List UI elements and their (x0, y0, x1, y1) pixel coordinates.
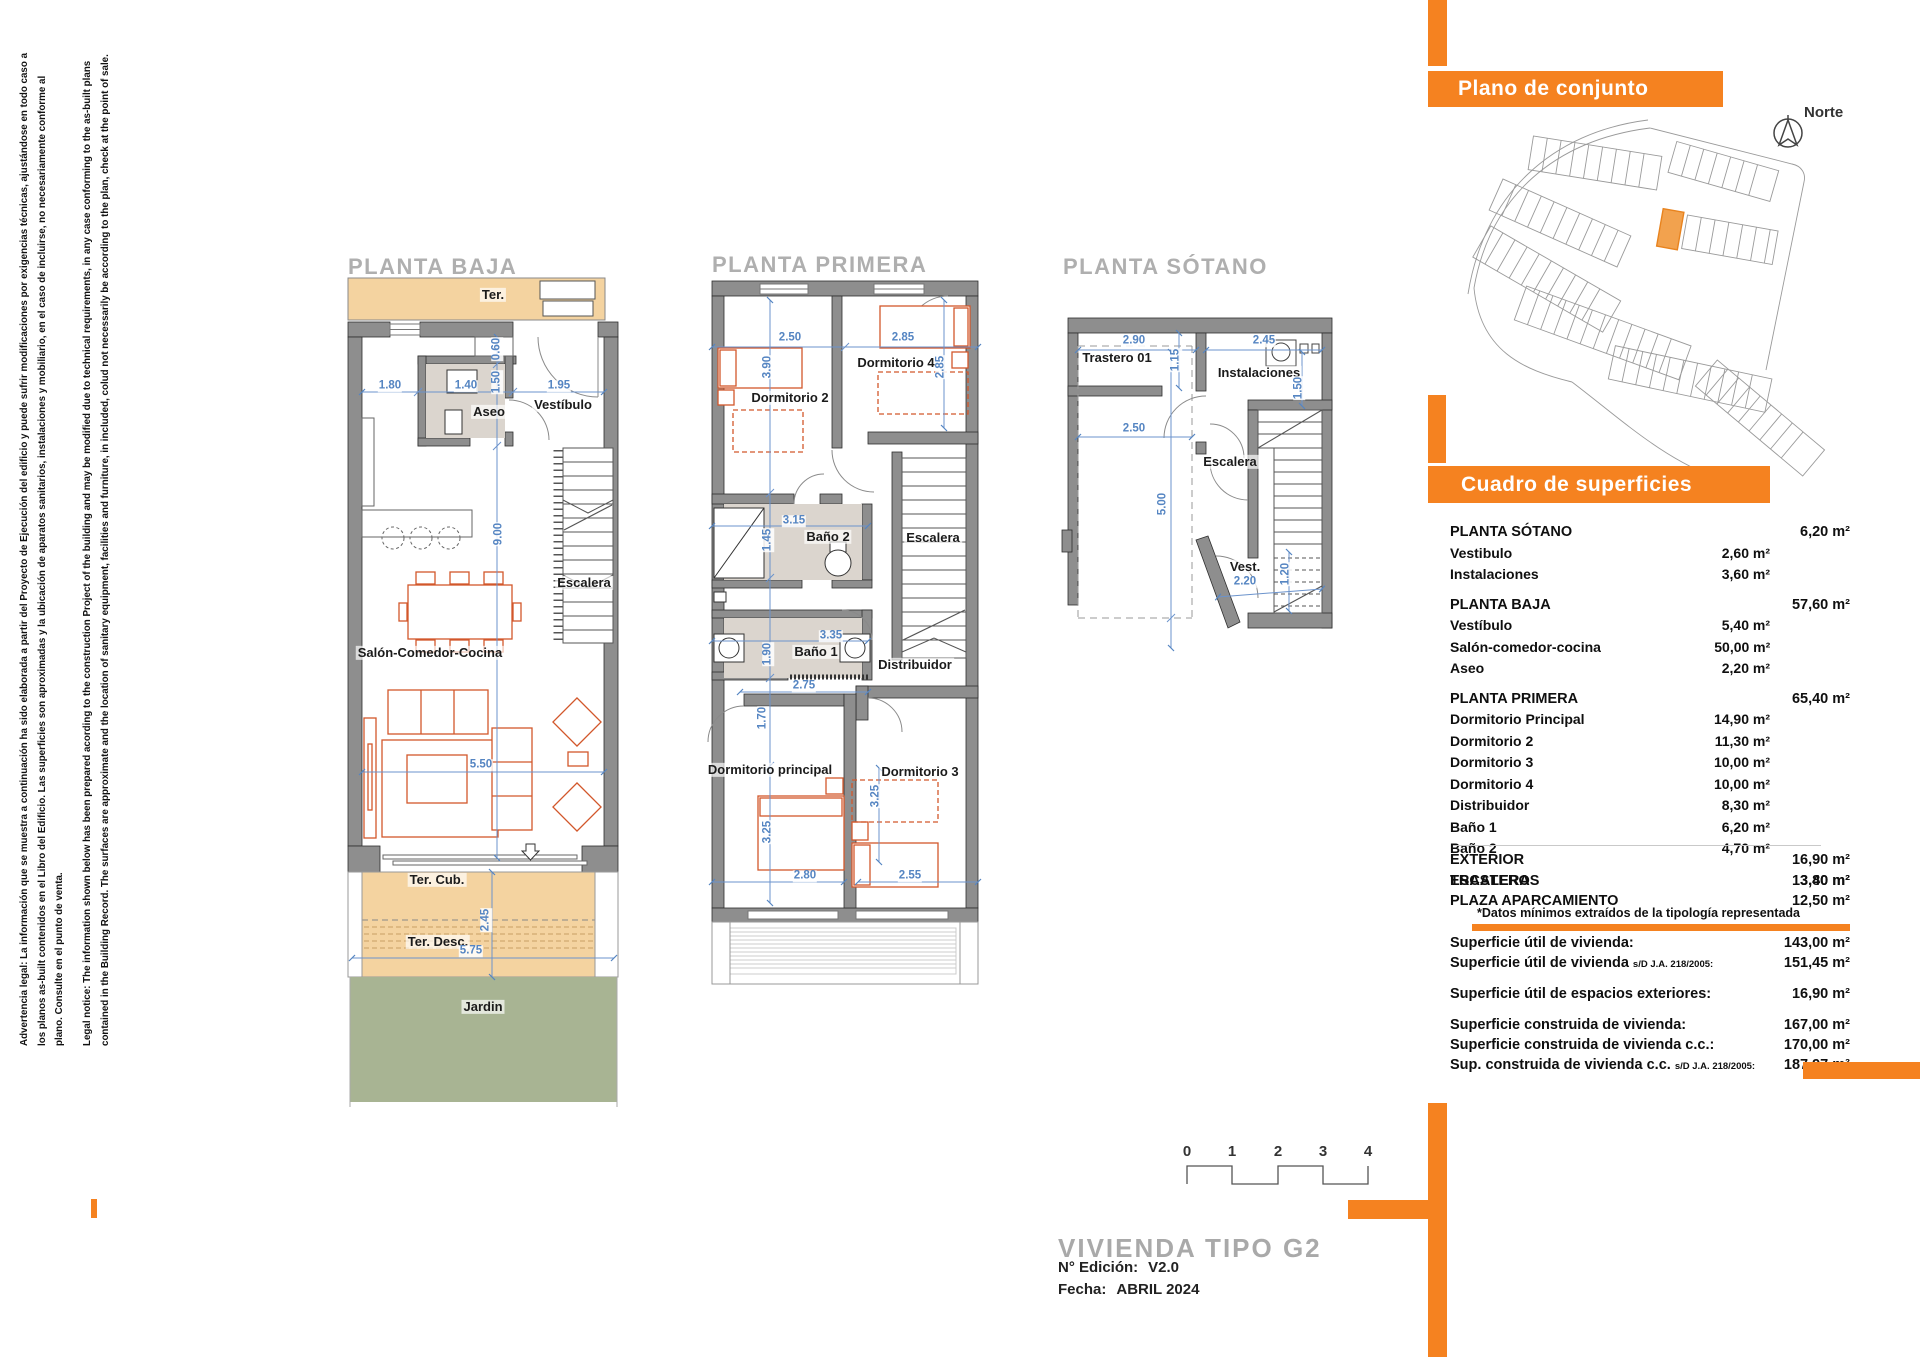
dim-primera-dorm3-d: 3.25 (870, 784, 882, 808)
surface-table-row: Instalaciones 3,60 m² (1450, 565, 1850, 587)
dim-primera-dorm2-d: 3.90 (762, 355, 774, 379)
north-label: Norte (1804, 104, 1843, 121)
site-plan-header-label: Plano de conjunto (1458, 77, 1649, 101)
surface-table-row: EXTERIOR 16,90 m² (1450, 851, 1850, 872)
dim-primera-ppal-w: 2.80 (793, 870, 817, 882)
plan-title-primera: PLANTA PRIMERA (712, 252, 927, 278)
surfaces-header-label: Cuadro de superficies (1461, 473, 1692, 497)
room-label-dorm4: Dormitorio 4 (855, 356, 936, 370)
dim-baja-length: 9.00 (493, 522, 505, 546)
site-plan-header: Plano de conjunto (1428, 71, 1723, 107)
site-plan-drawing (1468, 120, 1825, 480)
minimum-data-note: *Datos mínimos extraídos de la tipología… (1477, 906, 1800, 920)
dim-sotano-vest-w: 2.20 (1233, 576, 1257, 588)
legal-notice: Advertencia legal: La información que se… (16, 46, 124, 1046)
room-label-bano1: Baño 1 (792, 645, 839, 659)
surface-table-row: Dormitorio 2 11,30 m² (1450, 732, 1850, 754)
legal-notice-es: Advertencia legal: La información que se… (16, 46, 69, 1046)
plan-title-baja: PLANTA BAJA (348, 254, 517, 280)
surface-table-row: Superficie útil de vivienda s/D J.A. 218… (1450, 954, 1850, 974)
date-line: Fecha:ABRIL 2024 (1058, 1281, 1199, 1298)
dim-sotano-trastero-w: 2.90 (1122, 335, 1146, 347)
surface-table-row: Distribuidor 8,30 m² (1450, 796, 1850, 818)
room-label-salon: Salón-Comedor-Cocina (356, 646, 504, 660)
room-label-jardin: Jardin (461, 1000, 504, 1014)
surface-table-row: Superficie útil de vivienda: 143,00 m² (1450, 934, 1850, 954)
surface-table-row: Baño 1 6,20 m² (1450, 818, 1850, 840)
surface-table-row: Aseo 2,20 m² (1450, 659, 1850, 681)
dim-primera-ppal-d: 3.25 (762, 820, 774, 844)
scale-tick-4: 4 (1364, 1143, 1372, 1160)
header-accent-stem (1428, 0, 1447, 66)
room-label-dorm2: Dormitorio 2 (749, 391, 830, 405)
dim-sotano-parking-w: 2.50 (1122, 423, 1146, 435)
dim-primera-dorm4-d: 2.85 (935, 355, 947, 379)
edition-line: N° Edición:V2.0 (1058, 1259, 1179, 1276)
surface-table-row: Dormitorio 4 10,00 m² (1450, 775, 1850, 797)
dim-primera-dorm4-w: 2.85 (891, 332, 915, 344)
dim-sotano-parking-l: 5.00 (1157, 492, 1169, 516)
room-label-escalera-sotano: Escalera (1201, 455, 1259, 469)
dim-baja-d-aseo: 1.50 (491, 370, 503, 394)
surface-table-main: PLANTA SÓTANO 6,20 m² Vestibulo 2,60 m² … (1450, 514, 1850, 892)
room-label-escalera-primera: Escalera (904, 531, 962, 545)
surface-table-row: Vestibulo 2,60 m² (1450, 544, 1850, 566)
legal-notice-en: Legal notice: The information shown belo… (79, 46, 114, 1046)
dim-primera-dorm3-w: 2.55 (898, 870, 922, 882)
dim-sotano-trastero-d: 1.15 (1170, 348, 1182, 372)
dim-sotano-inst-w: 2.45 (1252, 335, 1276, 347)
surface-table-row: Superficie útil de espacios exteriores: … (1450, 985, 1850, 1005)
room-label-aseo: Aseo (471, 405, 507, 419)
dim-baja-terrace-depth: 2.45 (480, 908, 492, 932)
surface-table-exterior: EXTERIOR 16,90 m² TRASTERO 3,40 m² PLAZA… (1450, 851, 1850, 913)
dim-primera-bano1-w: 3.35 (819, 630, 843, 642)
scale-bar (1187, 1166, 1368, 1184)
date-label: Fecha: (1058, 1281, 1106, 1298)
room-label-distribuidor: Distribuidor (876, 658, 954, 672)
room-label-escalera-baja: Escalera (555, 576, 613, 590)
surface-table-row: PLANTA SÓTANO 6,20 m² (1450, 523, 1850, 544)
surface-table-row: Dormitorio 3 10,00 m² (1450, 753, 1850, 775)
dim-baja-d-closet: 0.60 (491, 337, 503, 361)
dim-sotano-inst-d: 1.50 (1293, 376, 1305, 400)
surface-table-row: Dormitorio Principal 14,90 m² (1450, 710, 1850, 732)
room-label-dorm3: Dormitorio 3 (879, 765, 960, 779)
edition-label: N° Edición: (1058, 1259, 1138, 1276)
scale-tick-0: 0 (1183, 1143, 1191, 1160)
left-margin-accent (91, 1199, 97, 1218)
scale-tick-1: 1 (1228, 1143, 1236, 1160)
dim-baja-width: 5.50 (469, 759, 493, 771)
room-label-vestibulo: Vestíbulo (532, 398, 594, 412)
scale-tick-3: 3 (1319, 1143, 1327, 1160)
surfaces-accent-stem (1428, 395, 1446, 463)
dim-baja-terrace-width: 5.75 (459, 945, 483, 957)
dim-primera-bano2-d: 1.45 (762, 528, 774, 552)
surface-table-row: Salón-comedor-cocina 50,00 m² (1450, 638, 1850, 660)
room-label-instalaciones: Instalaciones (1216, 366, 1302, 380)
dim-baja-w-right: 1.95 (547, 380, 571, 392)
date-value: ABRIL 2024 (1116, 1281, 1199, 1298)
surface-table-row: PLANTA PRIMERA 65,40 m² (1450, 690, 1850, 711)
plan-title-sotano: PLANTA SÓTANO (1063, 254, 1268, 280)
scale-tick-2: 2 (1274, 1143, 1282, 1160)
surfaces-header: Cuadro de superficies (1428, 466, 1770, 503)
room-label-ter-cub: Ter. Cub. (408, 873, 467, 887)
north-compass-icon (1774, 115, 1802, 147)
room-label-trastero: Trastero 01 (1080, 351, 1153, 365)
surface-table-row: Sup. construida de vivienda c.c. s/D J.A… (1450, 1056, 1850, 1076)
dim-primera-bano2-w: 3.15 (782, 515, 806, 527)
surface-table-row: TRASTERO 3,40 m² (1450, 872, 1850, 893)
edition-value: V2.0 (1148, 1259, 1179, 1276)
plan-sheet: Advertencia legal: La información que se… (0, 0, 1920, 1357)
dim-primera-hall-w: 2.75 (792, 680, 816, 692)
surface-table-row: Superficie construida de vivienda: 167,0… (1450, 1016, 1850, 1036)
footer-accent-bar (1428, 1103, 1447, 1357)
dim-primera-dorm2-w: 2.50 (778, 332, 802, 344)
room-label-bano2: Baño 2 (804, 530, 851, 544)
dim-primera-hall-d: 1.70 (757, 706, 769, 730)
surface-table-summary: Superficie útil de vivienda: 143,00 m² S… (1450, 934, 1850, 1076)
surface-table-row: Superficie construida de vivienda c.c.: … (1450, 1036, 1850, 1056)
dim-primera-bano1-d: 1.90 (762, 642, 774, 666)
table-divider (1453, 845, 1821, 846)
footer-accent-tab (1348, 1200, 1428, 1219)
dim-sotano-vest-d: 1.20 (1280, 562, 1292, 586)
room-label-ter: Ter. (480, 288, 506, 302)
surface-table-row: PLANTA BAJA 57,60 m² (1450, 596, 1850, 617)
table-footer-accent (1803, 1062, 1920, 1079)
room-label-dorm-ppal: Dormitorio principal (706, 763, 834, 777)
dim-baja-w-aseo: 1.40 (454, 380, 478, 392)
dim-baja-w-left: 1.80 (378, 380, 402, 392)
room-label-vest: Vest. (1228, 560, 1262, 574)
surface-table-row: Vestíbulo 5,40 m² (1450, 616, 1850, 638)
note-underline-accent (1472, 924, 1850, 931)
